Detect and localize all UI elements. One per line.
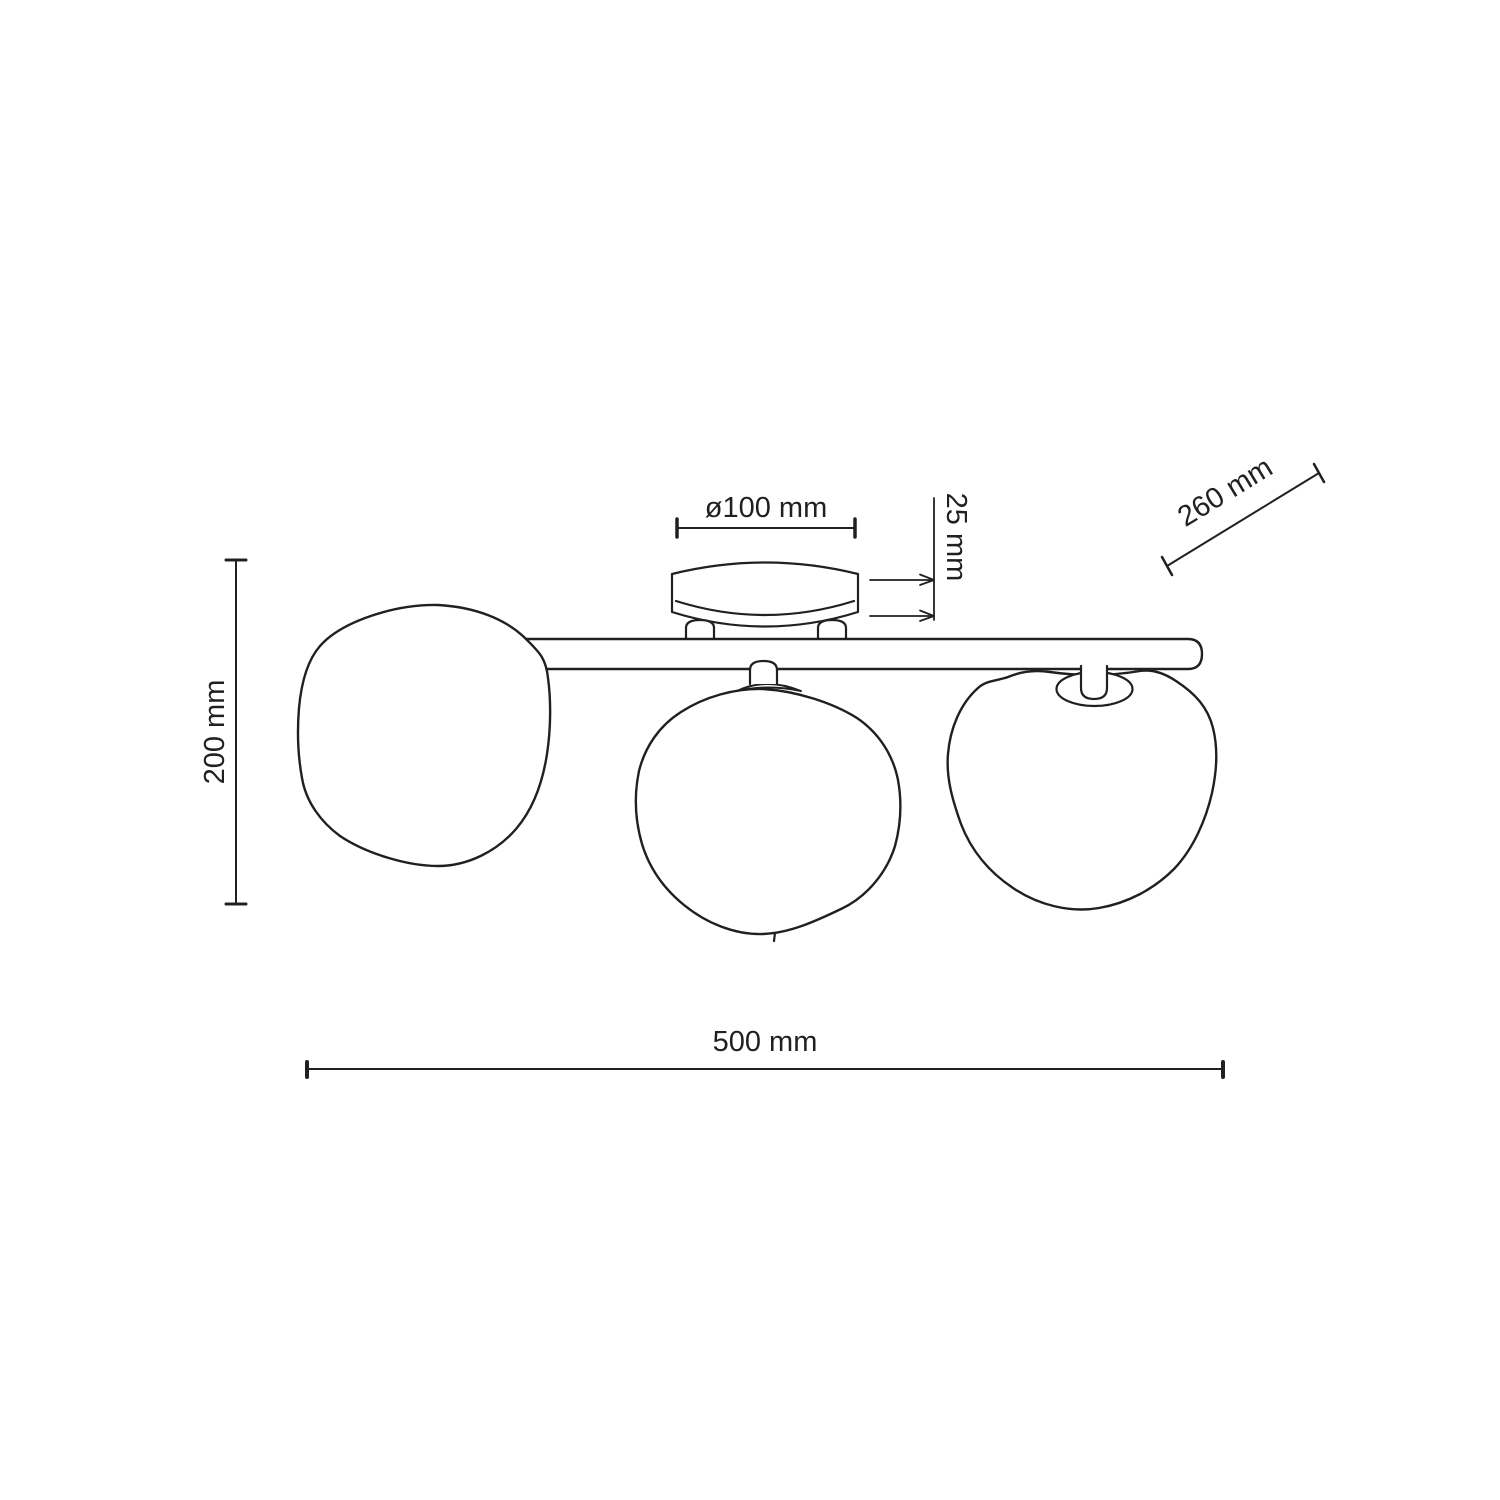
left-shade-outline bbox=[298, 605, 550, 866]
dim-label-fixture-height: 200 mm bbox=[199, 680, 231, 785]
dim-label-canopy-diameter: ø100 mm bbox=[705, 492, 827, 524]
right-socket-stem bbox=[1081, 666, 1107, 699]
lamp-fixture bbox=[298, 563, 1216, 942]
mounting-bar bbox=[527, 639, 1202, 669]
dim-label-shade-width: 260 mm bbox=[1172, 451, 1278, 533]
dimension-canopy-height: 25 mm bbox=[870, 493, 972, 621]
dimension-canopy-diameter: ø100 mm bbox=[677, 492, 855, 537]
dim-label-fixture-width: 500 mm bbox=[713, 1026, 818, 1058]
bar-body bbox=[527, 639, 1202, 669]
dimension-shade-width: 260 mm bbox=[1162, 451, 1324, 575]
middle-shade-seam bbox=[774, 933, 775, 941]
right-shade-outline bbox=[948, 670, 1217, 909]
ceiling-canopy bbox=[672, 563, 858, 640]
canopy-foot-left bbox=[686, 620, 714, 639]
middle-socket-dome bbox=[750, 661, 777, 684]
dim-label-canopy-height: 25 mm bbox=[940, 493, 972, 582]
canopy-body bbox=[672, 563, 858, 627]
canopy-foot-right bbox=[818, 620, 846, 639]
technical-drawing: ø100 mm 25 mm 260 mm 200 mm 500 mm bbox=[0, 0, 1500, 1500]
dimension-fixture-height: 200 mm bbox=[199, 560, 246, 904]
middle-shade-outline bbox=[636, 689, 901, 934]
dimension-fixture-width: 500 mm bbox=[307, 1026, 1223, 1077]
